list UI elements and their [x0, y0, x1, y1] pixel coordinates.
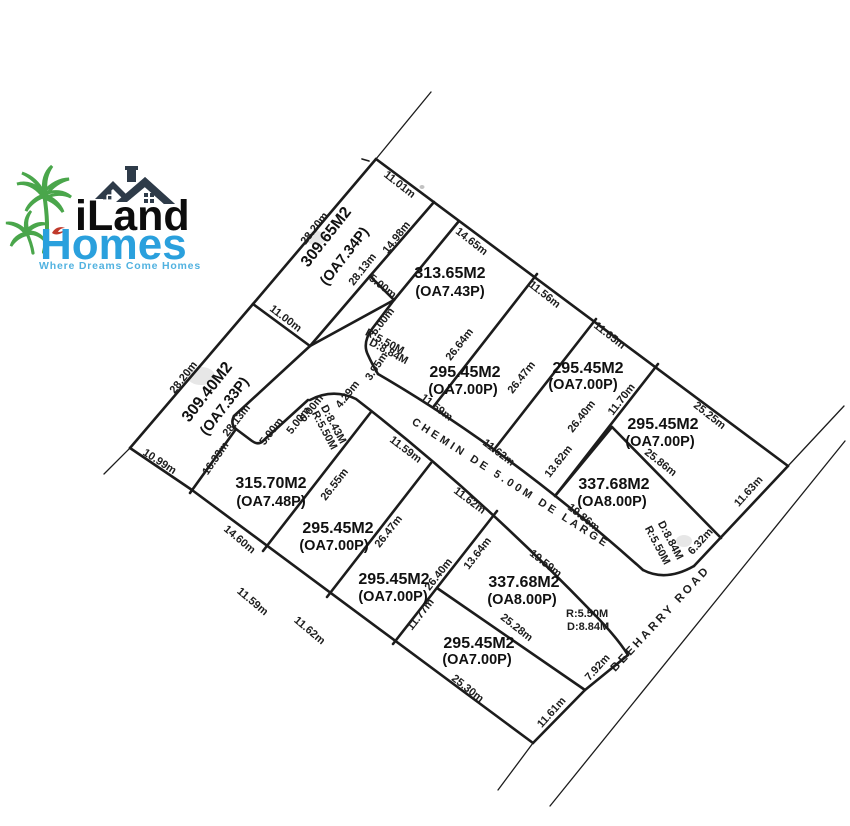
- svg-text:337.68M2: 337.68M2: [578, 476, 649, 493]
- svg-text:(OA7.00P): (OA7.00P): [625, 434, 694, 450]
- svg-text:295.45M2: 295.45M2: [358, 571, 429, 588]
- svg-text:(OA8.00P): (OA8.00P): [577, 494, 646, 510]
- svg-text:(OA7.00P): (OA7.00P): [442, 652, 511, 668]
- svg-text:(OA7.48P): (OA7.48P): [236, 494, 305, 510]
- svg-text:295.45M2: 295.45M2: [429, 364, 500, 381]
- svg-text:295.45M2: 295.45M2: [302, 520, 373, 537]
- svg-text:(OA7.43P): (OA7.43P): [415, 284, 484, 300]
- svg-text:(OA7.00P): (OA7.00P): [548, 377, 617, 393]
- svg-text:295.45M2: 295.45M2: [552, 360, 623, 377]
- svg-text:D:8.84M: D:8.84M: [567, 621, 609, 633]
- svg-text:Where Dreams Come Homes: Where Dreams Come Homes: [39, 260, 201, 272]
- svg-text:(OA7.00P): (OA7.00P): [299, 538, 368, 554]
- svg-text:295.45M2: 295.45M2: [443, 635, 514, 652]
- svg-text:(OA7.00P): (OA7.00P): [358, 589, 427, 605]
- svg-text:R:5.50M: R:5.50M: [566, 608, 608, 620]
- svg-text:(OA8.00P): (OA8.00P): [487, 592, 556, 608]
- svg-text:315.70M2: 315.70M2: [235, 475, 306, 492]
- svg-text:337.68M2: 337.68M2: [488, 574, 559, 591]
- svg-text:(OA7.00P): (OA7.00P): [428, 382, 497, 398]
- svg-text:313.65M2: 313.65M2: [414, 265, 485, 282]
- svg-text:295.45M2: 295.45M2: [627, 416, 698, 433]
